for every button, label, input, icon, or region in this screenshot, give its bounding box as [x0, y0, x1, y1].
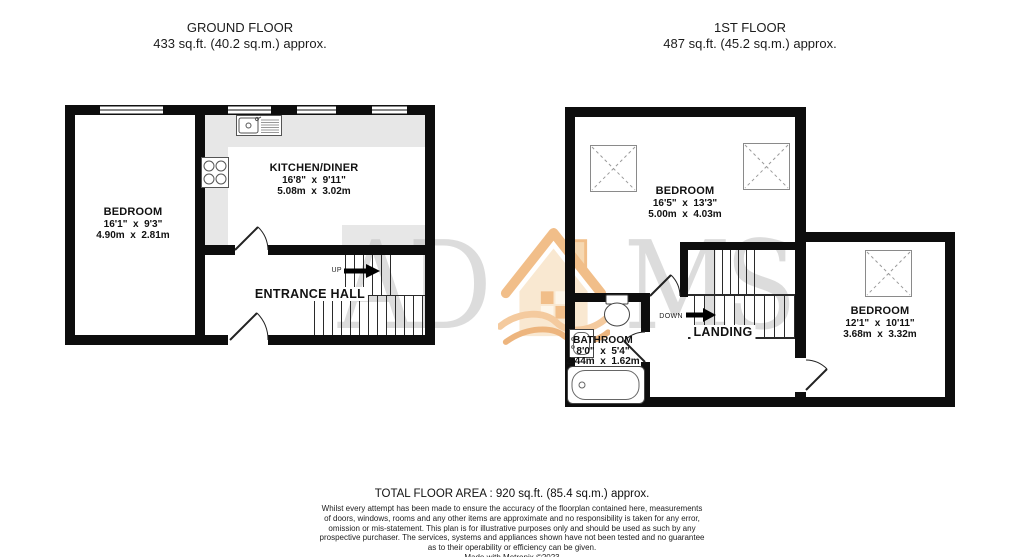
wall	[680, 242, 806, 250]
room-label-entrance-hall: ENTRANCE HALL	[252, 287, 368, 301]
wall	[795, 392, 806, 407]
ground-floor-title-block: GROUND FLOOR 433 sq.ft. (40.2 sq.m.) app…	[90, 20, 390, 52]
up-arrow-icon	[344, 264, 380, 278]
window	[297, 105, 336, 115]
floorplan-canvas: GROUND FLOOR 433 sq.ft. (40.2 sq.m.) app…	[0, 0, 1024, 557]
metropix-credit: Made with Metropix ©2023	[0, 553, 1024, 557]
wall	[268, 335, 435, 345]
disclaimer-line: omission or mis-statement. This plan is …	[0, 524, 1024, 534]
wall	[641, 293, 650, 332]
kitchen-sink-icon	[236, 115, 283, 137]
door-bedroom2	[806, 369, 827, 390]
disclaimer-line: of doors, windows, rooms and any other i…	[0, 514, 1024, 524]
stairs-down-label: DOWN	[654, 313, 683, 320]
wall	[271, 105, 297, 115]
skylight-window-icon	[590, 145, 637, 192]
ground-floor-area: 433 sq.ft. (40.2 sq.m.) approx.	[90, 36, 390, 52]
wall	[798, 232, 955, 242]
stove-hob-icon	[201, 157, 229, 188]
ground-floor-title: GROUND FLOOR	[90, 20, 390, 36]
wall	[268, 245, 435, 255]
first-floor-title-block: 1ST FLOOR 487 sq.ft. (45.2 sq.m.) approx…	[600, 20, 900, 52]
stairs-up-label: UP	[318, 267, 342, 274]
room-label-landing: LANDING	[690, 325, 755, 339]
window	[228, 105, 271, 115]
door-kitchen	[235, 227, 258, 250]
wall	[195, 105, 205, 345]
down-arrow-icon	[686, 308, 716, 322]
room-label-bedroom1: BEDROOM 16'5" x 13'3" 5.00m x 4.03m	[648, 186, 721, 221]
total-floor-area: TOTAL FLOOR AREA : 920 sq.ft. (85.4 sq.m…	[0, 488, 1024, 500]
toilet-icon	[602, 294, 632, 328]
door-kitchen-arc	[258, 227, 268, 250]
disclaimer-line: Whilst every attempt has been made to en…	[0, 504, 1024, 514]
room-label-bedroom-ground: BEDROOM 16'1" x 9'3" 4.90m x 2.81m	[96, 207, 169, 242]
skylight-window-icon	[865, 250, 912, 297]
wall	[195, 245, 235, 255]
window	[372, 105, 407, 115]
room-label-bedroom2: BEDROOM 12'1" x 10'11" 3.68m x 3.32m	[843, 306, 916, 341]
footer: TOTAL FLOOR AREA : 920 sq.ft. (85.4 sq.m…	[0, 488, 1024, 557]
door-front-entrance-arc	[257, 313, 268, 340]
door-bedroom2-arc	[806, 360, 827, 369]
wall	[945, 232, 955, 407]
first-floor-area: 487 sq.ft. (45.2 sq.m.) approx.	[600, 36, 900, 52]
room-label-kitchen-diner: KITCHEN/DINER 16'8" x 9'11" 5.08m x 3.02…	[270, 163, 359, 198]
stairs-lower-treads	[314, 296, 426, 335]
wall	[425, 105, 435, 345]
stairs-down-treads	[714, 250, 758, 294]
skylight-window-icon	[743, 143, 790, 190]
bathtub-icon	[567, 366, 646, 405]
disclaimer-line: prospective purchaser. The services, sys…	[0, 533, 1024, 543]
wall	[65, 105, 75, 345]
wall	[680, 242, 688, 297]
window	[100, 105, 163, 115]
first-floor-title: 1ST FLOOR	[600, 20, 900, 36]
wall	[565, 107, 805, 117]
door-front-entrance	[230, 313, 257, 340]
wall	[336, 105, 372, 115]
room-label-bathroom: BATHROOM 8'0" x 5'4" 2.44m x 1.62m	[566, 336, 639, 368]
disclaimer-line: as to their operability or efficiency ca…	[0, 543, 1024, 553]
